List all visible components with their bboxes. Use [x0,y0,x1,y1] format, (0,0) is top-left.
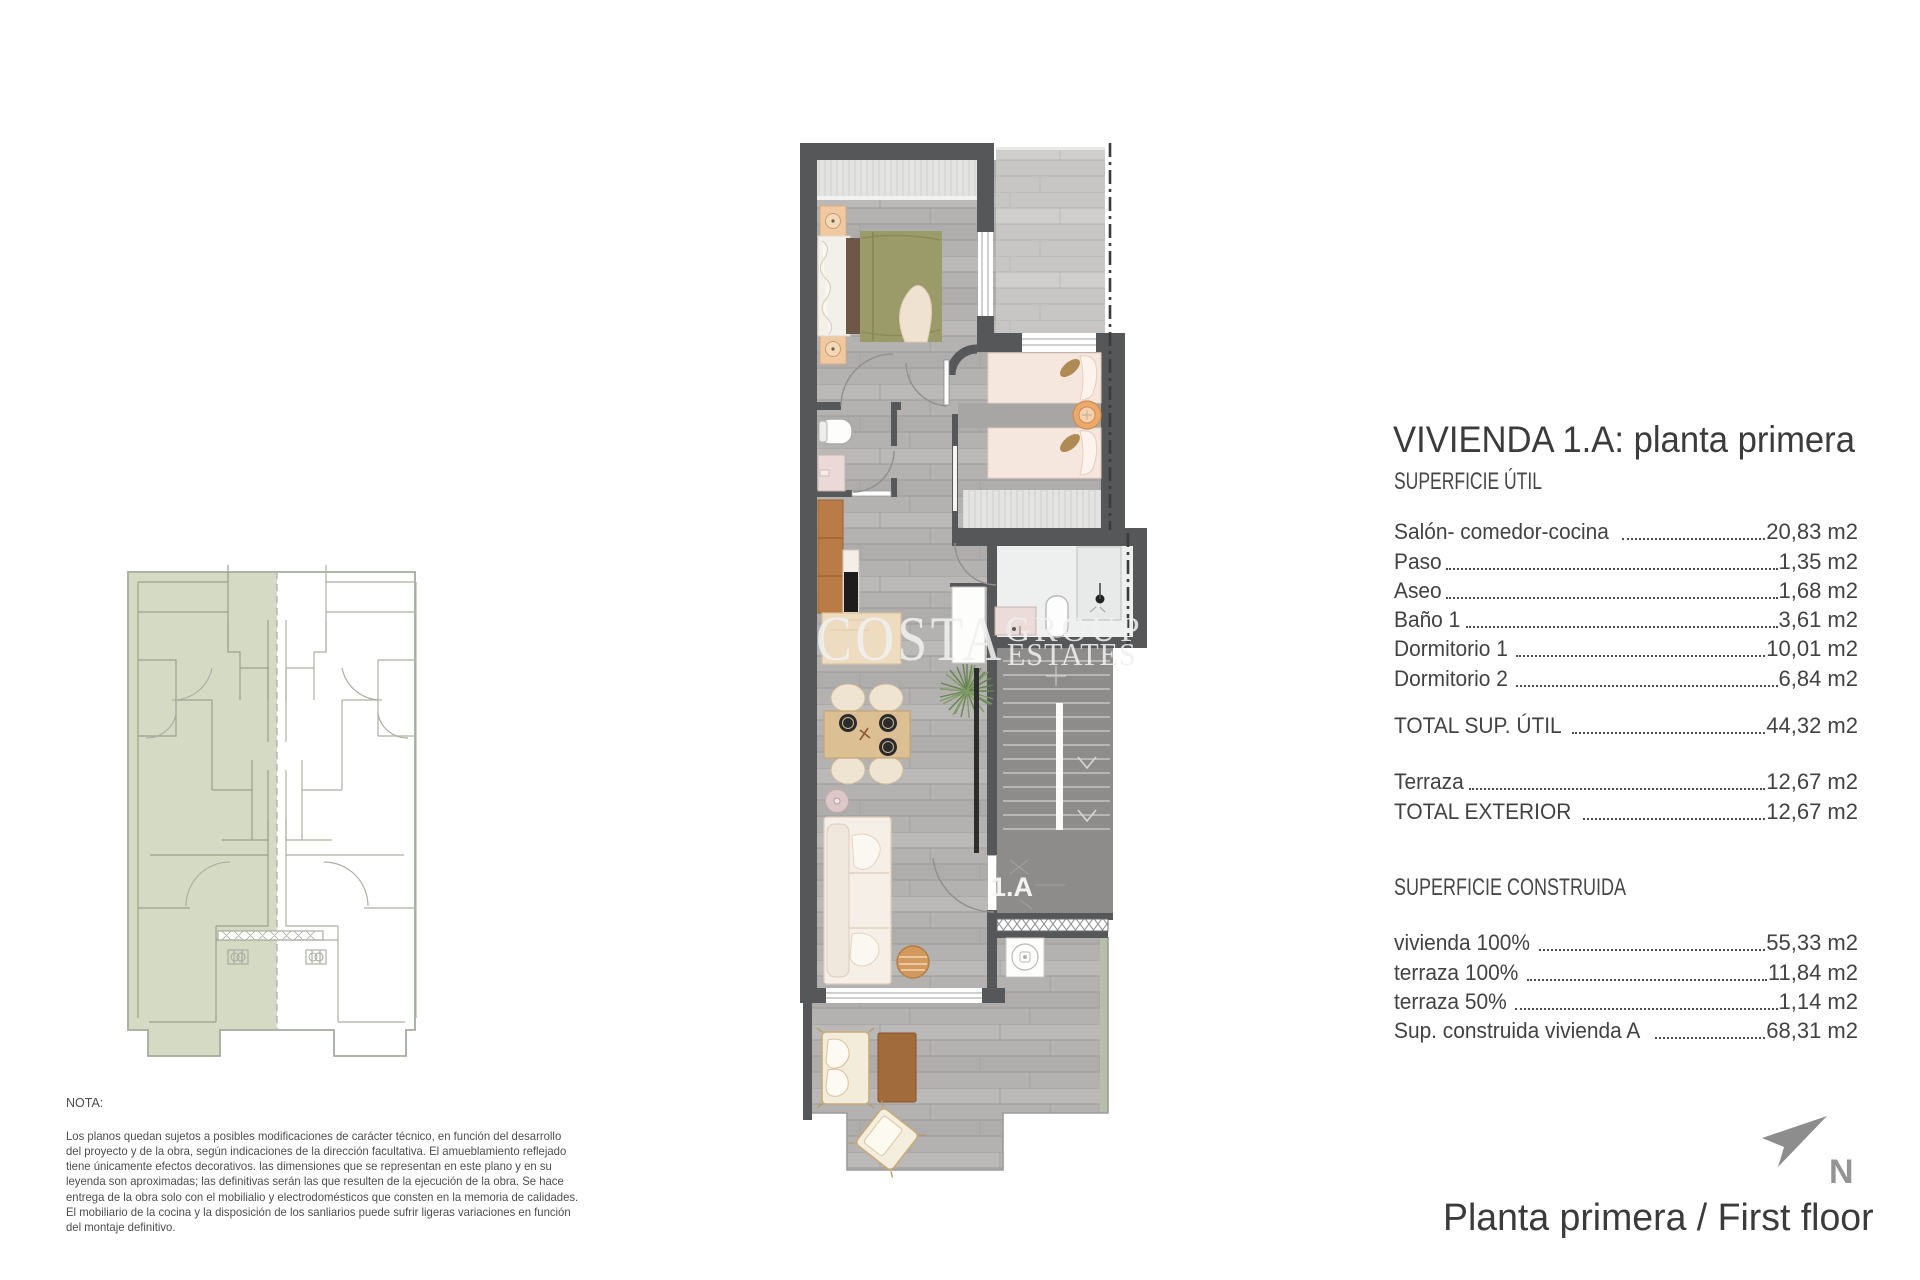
svg-text:1.A: 1.A [991,872,1033,902]
svg-text:N: N [1829,1153,1854,1191]
